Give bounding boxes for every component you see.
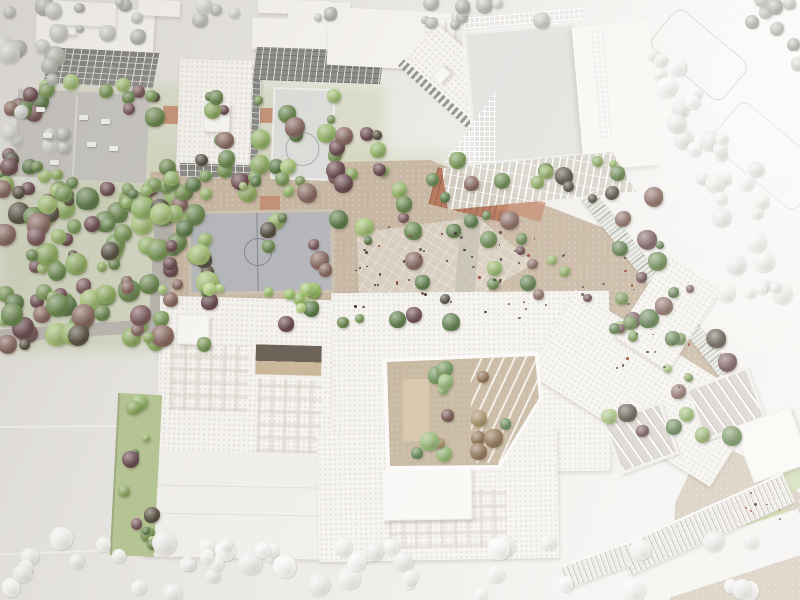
ne-gym [572, 21, 661, 171]
n1-facade-south [179, 163, 254, 180]
annex-roof-seam-2 [144, 512, 324, 516]
white-right-tree [718, 285, 735, 302]
white-diag-2-tree [674, 130, 693, 149]
gray-ne-tree [759, 0, 777, 12]
handball-court-circle [285, 131, 320, 166]
plaza-east-tree [656, 241, 664, 249]
n1-tower [176, 59, 262, 174]
skylight-patch-a [169, 344, 249, 412]
traffic-island-2 [707, 99, 800, 214]
terracotta-paving-3 [260, 196, 280, 210]
n1-rooftop-box [203, 101, 230, 132]
skylight-patch-b [256, 378, 322, 454]
gray-top-center-tree [423, 0, 439, 11]
white-bottom-row-tree [163, 583, 183, 600]
white-diag-3-tree [696, 173, 708, 185]
soccer-center-circle [244, 238, 272, 266]
gray-ne-tree [767, 0, 783, 15]
gray-gap-1-tree [228, 7, 240, 19]
patio-slot [253, 342, 324, 378]
parking-lot [14, 89, 150, 184]
white-bottom-row-tree [50, 527, 73, 550]
white-bottom-row-tree [69, 554, 84, 569]
traffic-island-1 [647, 6, 751, 105]
gray-gap-1-tree [196, 0, 212, 14]
model-scene [0, 0, 800, 600]
gray-nw-tree [0, 42, 20, 64]
white-bottom-row-tree [180, 557, 194, 571]
white-diag-2-tree [667, 114, 686, 133]
gray-top-center-tree [455, 0, 470, 14]
gray-top-center-tree [457, 4, 470, 17]
nw-building-facade [43, 47, 160, 88]
white-diag-3-tree [718, 173, 731, 186]
gray-gap-1-tree [192, 12, 208, 28]
white-bottom-row-tree [402, 575, 416, 589]
white-diag-4-tree [712, 207, 732, 227]
white-bottom-row-tree [183, 558, 196, 571]
plaza-east-tree [637, 230, 657, 250]
white-right-tree [758, 279, 772, 293]
gray-nw-tree [0, 36, 13, 56]
parking-lane-line [72, 96, 78, 176]
white-right-tree [770, 282, 782, 294]
north-edge-slab-1 [51, 0, 116, 27]
school-west-slab [156, 296, 338, 463]
gray-nw-tree [3, 6, 16, 19]
handball-court [270, 87, 335, 181]
green-verge-west [110, 393, 162, 557]
gray-gap-1-tree [210, 4, 222, 16]
white-diag-3-tree [687, 142, 701, 156]
n3-wing-dormer-1 [431, 65, 451, 85]
gray-ne-tree [783, 0, 796, 10]
white-bottom-row-tree [209, 556, 224, 571]
white-right-tree [756, 284, 767, 295]
gray-nw-tree [9, 40, 27, 58]
white-bottom-row-tree [403, 570, 418, 585]
white-bottom-row-tree [18, 560, 33, 575]
white-bottom-row-tree [13, 564, 32, 583]
white-bottom-row-tree [21, 548, 39, 566]
white-diag-1-tree [657, 77, 677, 97]
parking-south-row-tree [0, 169, 6, 179]
plaza-east-tree [644, 187, 664, 207]
white-right-tree [726, 255, 746, 275]
white-right-tree [771, 283, 792, 304]
gray-top-center-tree [492, 0, 503, 9]
white-bottom-row-tree [474, 588, 487, 600]
school-west-roofbox [177, 314, 210, 345]
white-bottom-row-tree [338, 567, 360, 589]
north-edge-slab-2 [138, 0, 181, 17]
white-bottom-row-tree [131, 580, 146, 595]
white-right-tree [746, 232, 766, 252]
annex-roof-seam-1 [144, 484, 324, 488]
white-diag-4-tree [754, 194, 769, 209]
courtyard-path [403, 379, 429, 441]
white-bottom-row-tree [205, 569, 220, 584]
gray-n-tree [115, 0, 124, 7]
white-diag-2-tree [685, 94, 700, 109]
white-right-tree [744, 287, 755, 298]
white-diag-1-tree [653, 67, 666, 80]
white-bottom-row-tree [2, 578, 21, 597]
soccer-field [187, 209, 334, 296]
left-edge-tree [2, 148, 15, 161]
white-right-tree [754, 251, 775, 272]
gray-top-center-tree [476, 0, 493, 14]
white-bottom-row-tree [486, 566, 504, 584]
school-raised-volume [382, 467, 473, 521]
white-diag-4-tree [751, 207, 763, 219]
white-diag-2-tree [672, 101, 689, 118]
white-diag-4-tree [705, 174, 725, 194]
white-diag-4-tree [714, 192, 727, 205]
school-annex-sw [143, 450, 325, 559]
white-bottom-row-tree [308, 574, 330, 596]
